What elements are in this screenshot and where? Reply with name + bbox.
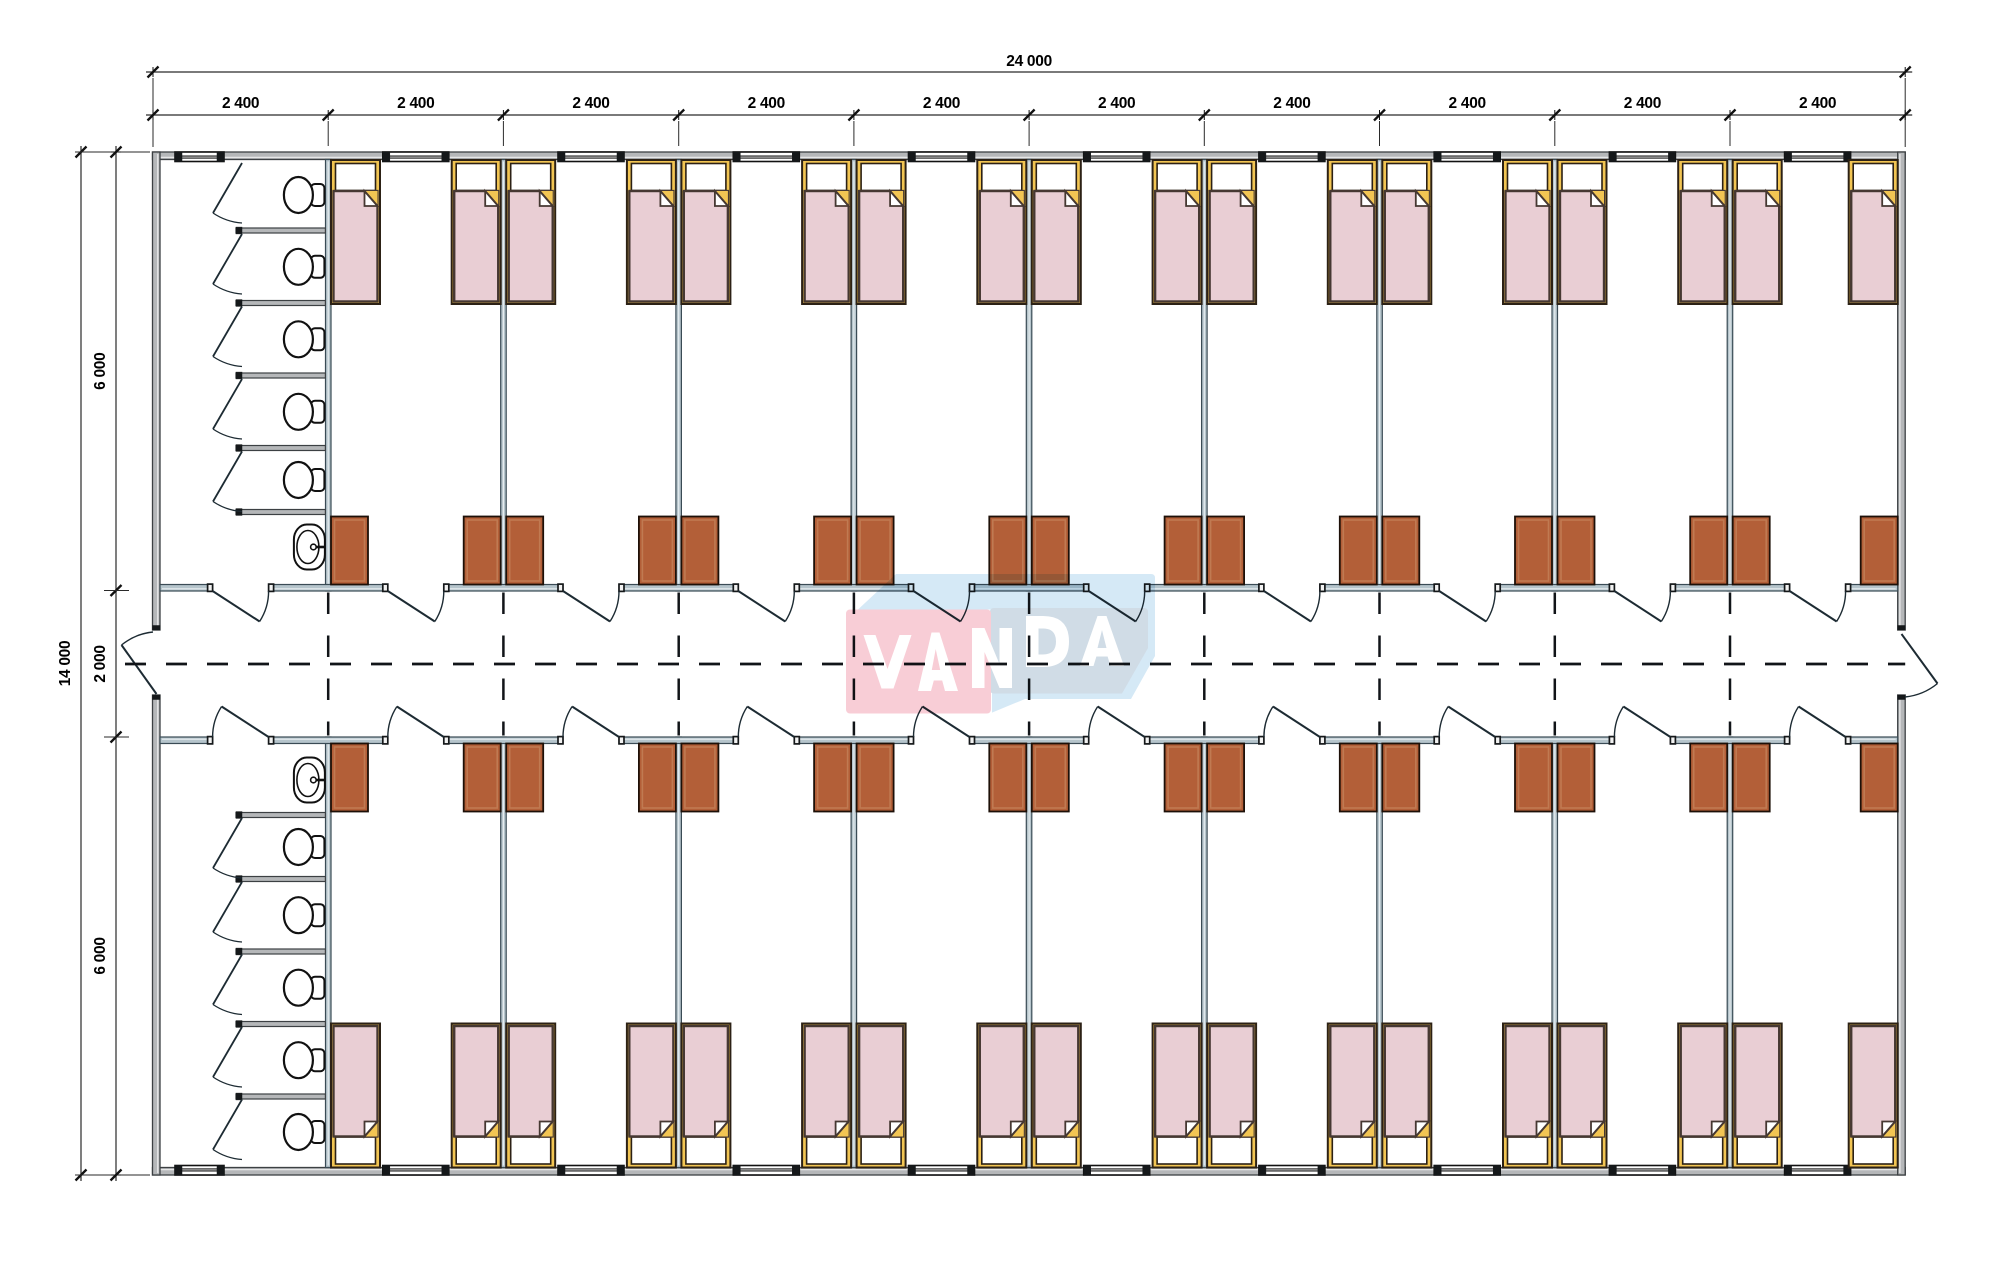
svg-text:2 400: 2 400 xyxy=(1273,95,1310,112)
svg-text:2 400: 2 400 xyxy=(397,95,434,112)
svg-text:6 000: 6 000 xyxy=(92,353,109,390)
svg-text:2 400: 2 400 xyxy=(1449,95,1486,112)
svg-text:6 000: 6 000 xyxy=(92,937,109,974)
svg-text:2 400: 2 400 xyxy=(222,95,259,112)
svg-text:2 400: 2 400 xyxy=(1098,95,1135,112)
svg-text:2 000: 2 000 xyxy=(92,645,109,682)
svg-text:2 400: 2 400 xyxy=(1799,95,1836,112)
svg-text:2 400: 2 400 xyxy=(923,95,960,112)
svg-text:2 400: 2 400 xyxy=(748,95,785,112)
svg-text:14 000: 14 000 xyxy=(57,641,74,687)
svg-text:2 400: 2 400 xyxy=(1624,95,1661,112)
svg-text:2 400: 2 400 xyxy=(572,95,609,112)
svg-text:24 000: 24 000 xyxy=(1006,53,1052,70)
